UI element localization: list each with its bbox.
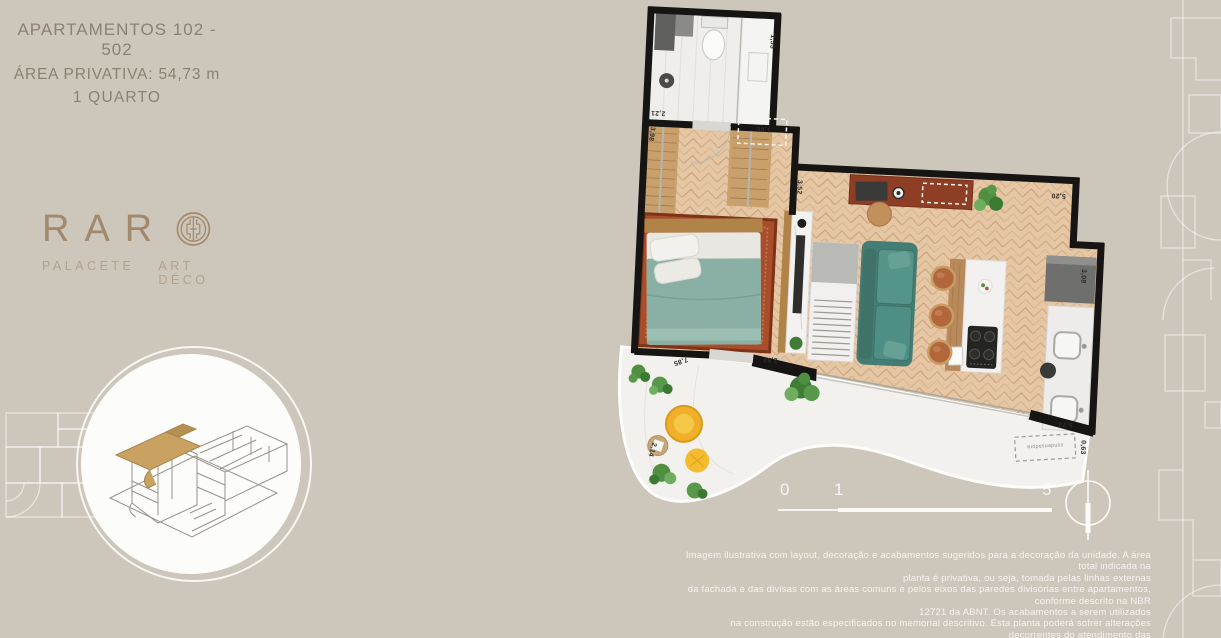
laptop-icon — [856, 182, 888, 201]
bed — [645, 218, 763, 344]
brand-o-icon — [175, 206, 212, 252]
private-area-label: ÁREA PRIVATIVA: 54,73 m — [0, 66, 234, 84]
dim-condenser-width: 0,63 — [1079, 440, 1087, 455]
toilet-tank — [701, 16, 728, 28]
dim-kitchen-depth: 3,08 — [1079, 269, 1087, 284]
scale-segment-1-5 — [838, 508, 1052, 512]
brand-block: RAR PALACETE ART DÉCO — [42, 206, 212, 287]
dim-entry-door: 1,66 — [756, 125, 771, 133]
scale-bar: 0 1 5 — [778, 480, 1058, 516]
inset-disc — [81, 354, 301, 574]
sofa — [856, 240, 918, 367]
dim-living-width: 5,20 — [1051, 192, 1066, 200]
disclaimer: Imagem ilustrativa com layout, decoração… — [681, 550, 1151, 638]
north-indicator-icon — [1060, 466, 1116, 544]
floorplan-page: APARTAMENTOS 102 - 502 ÁREA PRIVATIVA: 5… — [0, 0, 1221, 638]
bar-stools — [928, 266, 956, 364]
disclaimer-line: 12721 da ABNT. Os acabamentos a serem ut… — [681, 607, 1151, 618]
dim-hall-depth: 3,52 — [795, 180, 803, 195]
disclaimer-line: na construção estão especificados no mem… — [681, 618, 1151, 638]
disclaimer-line: da fachada e das divisas com as áreas co… — [681, 584, 1151, 607]
disclaimer-line: planta é privativa, ou seja, tomada pela… — [681, 573, 1151, 584]
building-inset — [70, 343, 314, 587]
cooktop-icon — [966, 326, 998, 369]
brand-tagline-right: ART DÉCO — [158, 259, 212, 287]
brand-tagline-left: PALACETE — [42, 259, 134, 287]
headboard — [645, 218, 763, 232]
brand-name: RAR — [42, 208, 167, 251]
washer-icon — [654, 13, 676, 51]
throw-blanket — [647, 328, 761, 340]
dim-bedroom-door: 2,92 — [763, 356, 778, 364]
dim-bath-width: 1,55 — [768, 34, 776, 49]
scale-segment-0-1 — [778, 509, 838, 511]
bathroom-door — [692, 120, 730, 131]
desk-chair — [867, 202, 892, 227]
scale-tick-5: 5 — [1042, 480, 1052, 500]
floor-plan: condensadora — [596, 2, 1121, 547]
scale-tick-1: 1 — [834, 480, 844, 500]
dim-kitchen-width: 5,74 — [1058, 420, 1073, 428]
page-title-block: APARTAMENTOS 102 - 502 ÁREA PRIVATIVA: 5… — [0, 20, 234, 107]
page-title: APARTAMENTOS 102 - 502 — [0, 20, 234, 60]
rooms-label: 1 QUARTO — [0, 89, 234, 107]
sink-icon — [1054, 332, 1081, 359]
plate-icon — [978, 279, 993, 294]
disclaimer-line: Imagem ilustrativa com layout, decoração… — [681, 550, 1151, 573]
dim-bath-depth: 2,21 — [651, 109, 666, 117]
scale-tick-0: 0 — [780, 480, 790, 500]
